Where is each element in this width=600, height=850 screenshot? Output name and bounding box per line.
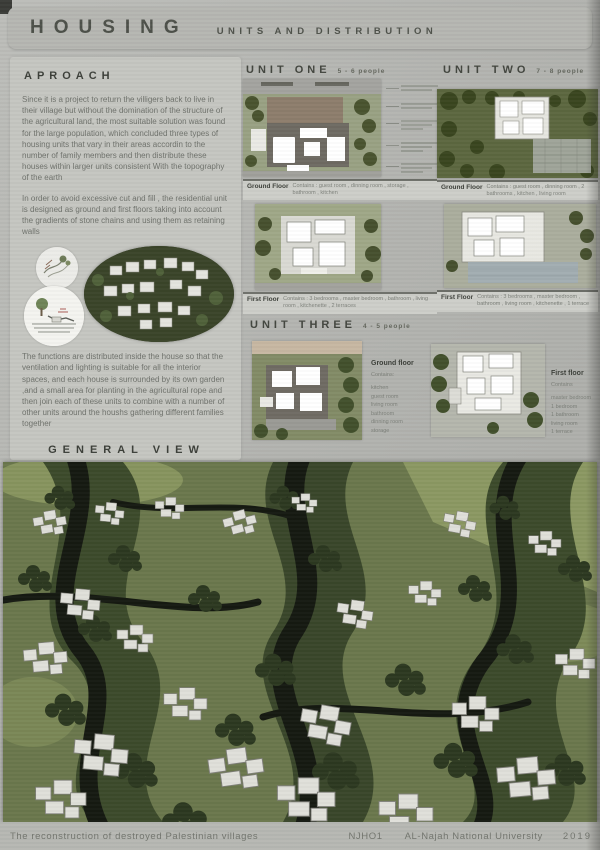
unit-two-ground-contains: Contains : guest room , dinning room , 2… xyxy=(487,184,594,198)
footer-university: AL-Najah National University xyxy=(405,831,543,842)
plan-annotation xyxy=(386,142,438,154)
footer-project-code: NJHO1 xyxy=(348,831,382,842)
unit-one-first-plan xyxy=(255,204,381,290)
cluster-render-ellipse xyxy=(84,246,234,342)
footer-bar: The reconstruction of destroyed Palestin… xyxy=(0,822,600,850)
general-view-heading: GENERAL VIEW xyxy=(24,444,229,456)
plan-annotation xyxy=(386,85,438,93)
unit-three-title: UNIT THREE xyxy=(250,319,356,331)
unit-two-first-label: First Floor xyxy=(441,294,473,301)
unit-two-first-contains: Contains : 3 bedrooms , master bedroom ,… xyxy=(477,294,594,308)
plan-annotation xyxy=(386,103,438,111)
unit-one-ground-label: Ground Floor xyxy=(247,183,289,190)
unit-two-ground-caption: Ground Floor Contains : guest room , din… xyxy=(437,180,598,200)
approach-panel: APROACH Since it is a project to return … xyxy=(10,57,241,460)
unit-three-ground-item: guest room xyxy=(371,393,429,402)
unit-one-ground-caption: Ground Floor Contains : guest room , din… xyxy=(243,179,437,200)
unit-three-ground-label: Ground floor xyxy=(371,360,429,367)
unit-one-ground-plan xyxy=(243,79,381,177)
approach-paragraph-3: The functions are distributed inside the… xyxy=(22,351,229,429)
sketch-circle-plan xyxy=(36,247,78,289)
header-bar: HOUSING UNITS AND DISTRIBUTION xyxy=(8,7,592,49)
unit-one-plan-annotations xyxy=(386,85,438,175)
poster: HOUSING UNITS AND DISTRIBUTION APROACH S… xyxy=(0,0,600,850)
approach-paragraph-1: Since it is a project to return the vill… xyxy=(22,94,229,184)
unit-one-first-caption: First Floor Contains : 3 bedrooms , mast… xyxy=(243,292,437,314)
general-view-render xyxy=(3,462,597,822)
poster-title: HOUSING xyxy=(30,17,189,39)
unit-two-heading: UNIT TWO 7 - 8 people xyxy=(443,64,584,76)
sketch-circle-section xyxy=(24,286,84,346)
paper-edge-shadow xyxy=(586,0,600,850)
unit-three-ground-contains-label: Contains: xyxy=(371,372,429,378)
unit-one-heading: UNIT ONE 5 - 6 people xyxy=(246,64,385,76)
footer-caption: The reconstruction of destroyed Palestin… xyxy=(10,831,258,842)
unit-three-ground-text: Ground floor Contains: kitchen guest roo… xyxy=(371,360,429,435)
unit-one-title: UNIT ONE xyxy=(246,64,331,76)
unit-two-ground-label: Ground Floor xyxy=(441,184,483,191)
unit-three-ground-item: kitchen xyxy=(371,384,429,393)
unit-two-first-caption: First Floor Contains : 3 bedrooms , mast… xyxy=(437,290,598,312)
unit-two-ground-plan xyxy=(437,89,598,178)
unit-three-ground-item: bathroom xyxy=(371,410,429,419)
unit-one-ground-contains: Contains : guest room , dinning room , s… xyxy=(293,183,433,197)
unit-two-first-plan xyxy=(444,204,596,288)
unit-three-heading: UNIT THREE 4 - 5 people xyxy=(250,319,411,331)
poster-subtitle: UNITS AND DISTRIBUTION xyxy=(217,26,438,37)
unit-three-ground-item: storage xyxy=(371,427,429,436)
unit-one-first-contains: Contains : 3 bedrooms , master bedroom ,… xyxy=(283,296,433,310)
approach-heading: APROACH xyxy=(24,70,229,82)
unit-one-capacity: 5 - 6 people xyxy=(338,68,386,75)
plan-annotation xyxy=(386,163,438,175)
unit-three-first-plan xyxy=(431,344,545,437)
approach-paragraph-2: In order to avoid excessive cut and fill… xyxy=(22,193,229,238)
unit-one-first-label: First Floor xyxy=(247,296,279,303)
unit-two-title: UNIT TWO xyxy=(443,64,529,76)
unit-two-capacity: 7 - 8 people xyxy=(536,68,584,75)
unit-three-ground-plan xyxy=(252,341,362,440)
concept-sketches xyxy=(22,246,229,343)
unit-three-ground-item: dinning room xyxy=(371,418,429,427)
unit-three-ground-item: living room xyxy=(371,401,429,410)
plan-annotation xyxy=(386,120,438,132)
unit-three-capacity: 4 - 5 people xyxy=(363,323,411,330)
